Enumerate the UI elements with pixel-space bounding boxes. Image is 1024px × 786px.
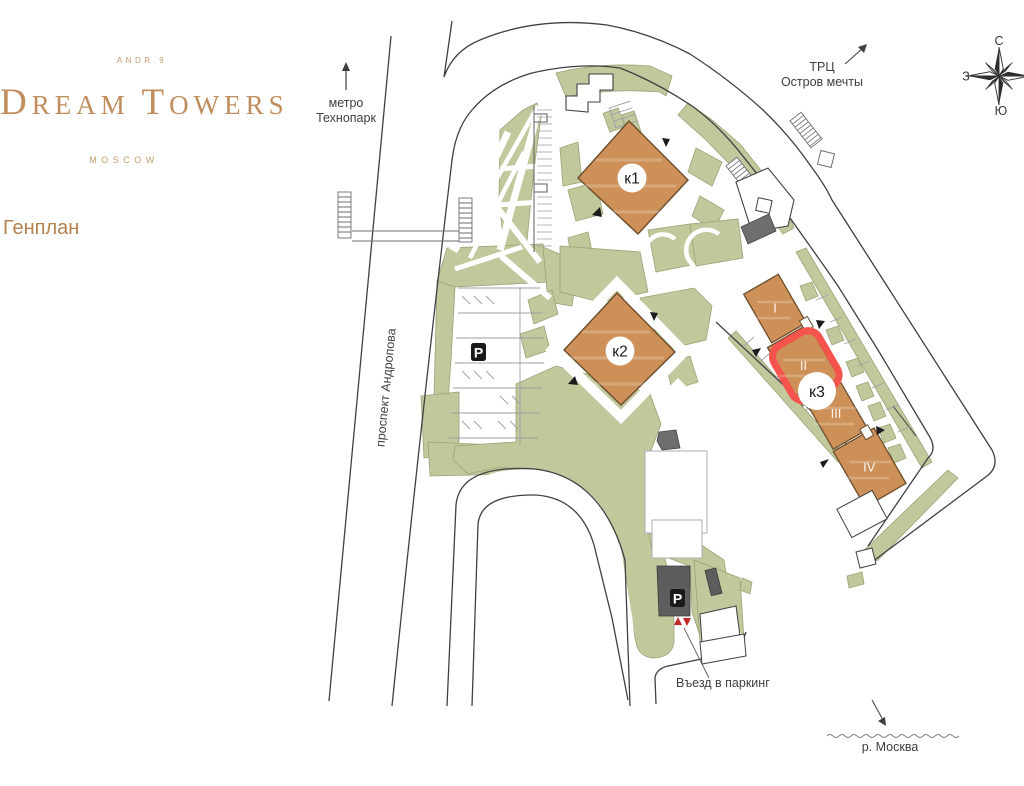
svg-text:р. Москва: р. Москва xyxy=(862,740,919,754)
svg-text:Въезд в паркинг: Въезд в паркинг xyxy=(676,676,770,690)
svg-text:Остров мечты: Остров мечты xyxy=(781,75,863,89)
svg-text:MOSCOW: MOSCOW xyxy=(89,155,159,165)
svg-text:метро: метро xyxy=(329,96,364,110)
svg-text:С: С xyxy=(994,34,1003,48)
svg-text:З: З xyxy=(962,70,970,84)
svg-text:ANDR.9: ANDR.9 xyxy=(117,56,167,65)
svg-text:P: P xyxy=(673,591,682,607)
svg-text:Технопарк: Технопарк xyxy=(316,111,376,125)
svg-text:P: P xyxy=(474,345,483,361)
svg-text:к1: к1 xyxy=(624,171,639,188)
svg-text:ТРЦ: ТРЦ xyxy=(809,60,835,74)
svg-text:к3: к3 xyxy=(809,384,825,401)
svg-text:Генплан: Генплан xyxy=(3,217,79,239)
svg-text:Ю: Ю xyxy=(995,104,1008,118)
svg-text:к2: к2 xyxy=(612,344,627,361)
